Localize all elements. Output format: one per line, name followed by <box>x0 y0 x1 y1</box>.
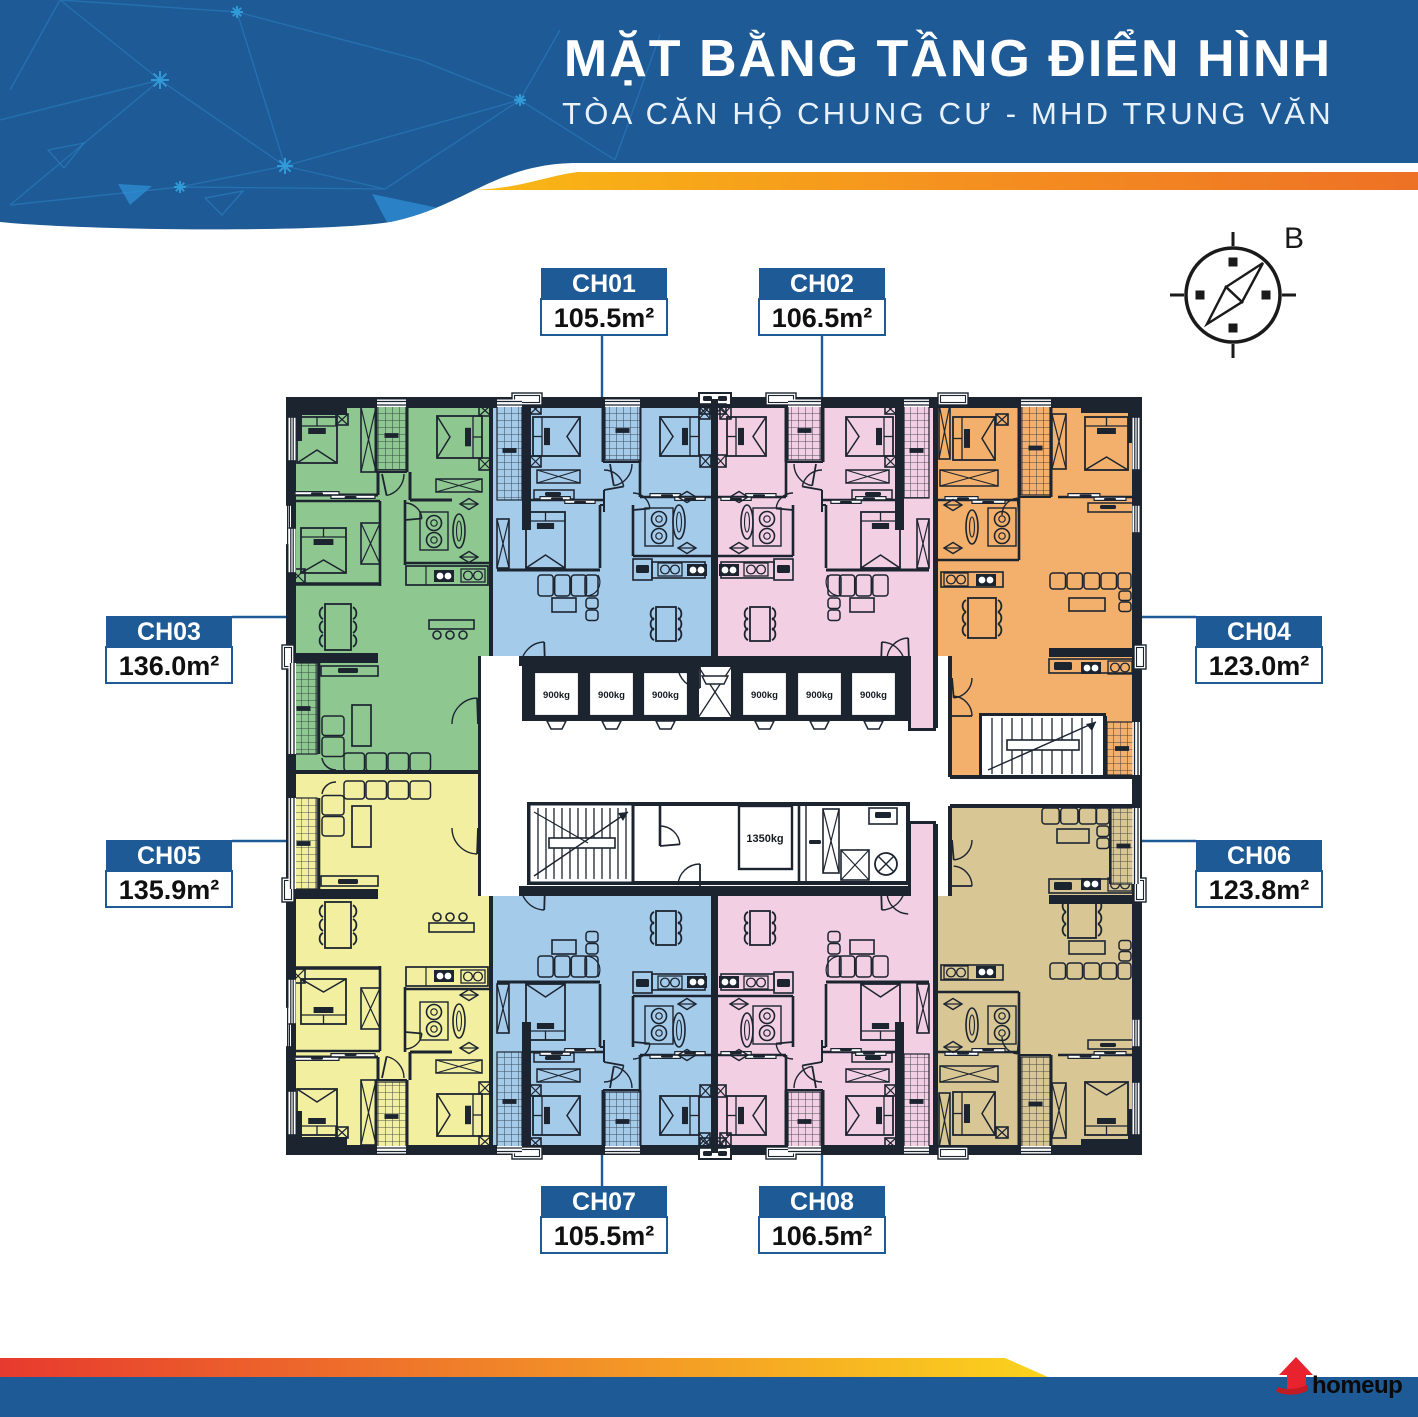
svg-text:B: B <box>1284 222 1304 255</box>
svg-text:106.5m²: 106.5m² <box>772 303 873 333</box>
svg-text:CH02: CH02 <box>790 270 854 298</box>
svg-text:900kg: 900kg <box>543 690 570 701</box>
svg-text:900kg: 900kg <box>751 690 778 701</box>
svg-text:123.0m²: 123.0m² <box>1209 651 1310 681</box>
svg-text:123.8m²: 123.8m² <box>1209 875 1310 905</box>
svg-text:900kg: 900kg <box>598 690 625 701</box>
svg-text:900kg: 900kg <box>652 690 679 701</box>
svg-text:CH06: CH06 <box>1227 842 1291 870</box>
svg-text:900kg: 900kg <box>806 690 833 701</box>
svg-text:CH01: CH01 <box>572 270 636 298</box>
svg-text:CH03: CH03 <box>137 618 201 646</box>
svg-text:105.5m²: 105.5m² <box>554 1221 655 1251</box>
svg-text:MẶT BẰNG TẦNG ĐIỂN HÌNH: MẶT BẰNG TẦNG ĐIỂN HÌNH <box>564 29 1332 88</box>
svg-text:900kg: 900kg <box>860 690 887 701</box>
svg-text:CH08: CH08 <box>790 1188 854 1216</box>
svg-text:105.5m²: 105.5m² <box>554 303 655 333</box>
svg-text:106.5m²: 106.5m² <box>772 1221 873 1251</box>
svg-text:CH04: CH04 <box>1227 618 1291 646</box>
svg-text:136.0m²: 136.0m² <box>119 651 220 681</box>
svg-text:135.9m²: 135.9m² <box>119 875 220 905</box>
svg-text:homeup: homeup <box>1312 1372 1402 1399</box>
svg-text:CH05: CH05 <box>137 842 201 870</box>
svg-text:1350kg: 1350kg <box>746 833 783 845</box>
svg-text:CH07: CH07 <box>572 1188 636 1216</box>
svg-text:TÒA CĂN HỘ CHUNG CƯ - MHD TRUN: TÒA CĂN HỘ CHUNG CƯ - MHD TRUNG VĂN <box>562 96 1334 131</box>
